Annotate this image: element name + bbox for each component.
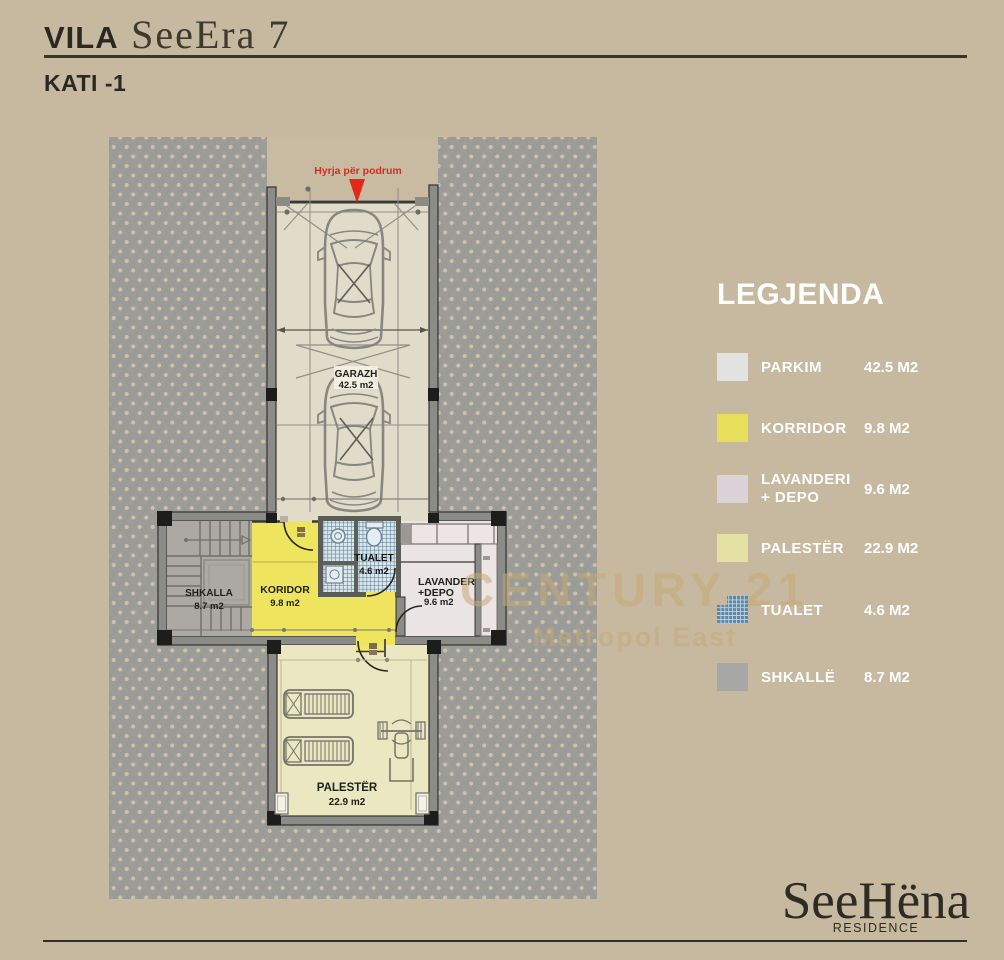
svg-text:PALESTËR: PALESTËR [317,781,378,794]
svg-text:8.7 m2: 8.7 m2 [194,601,224,612]
svg-text:22.9 m2: 22.9 m2 [329,797,366,808]
svg-text:TUALET: TUALET [354,553,393,564]
svg-text:GARAZH: GARAZH [335,369,378,380]
svg-text:9.6 m2: 9.6 m2 [424,597,454,608]
svg-text:KORIDOR: KORIDOR [260,584,310,596]
svg-text:Hyrja për podrum: Hyrja për podrum [314,165,402,177]
svg-text:9.8 m2: 9.8 m2 [270,598,300,609]
svg-text:42.5 m2: 42.5 m2 [339,380,374,391]
svg-text:SHKALLA: SHKALLA [185,588,233,599]
svg-text:4.6 m2: 4.6 m2 [359,566,389,577]
